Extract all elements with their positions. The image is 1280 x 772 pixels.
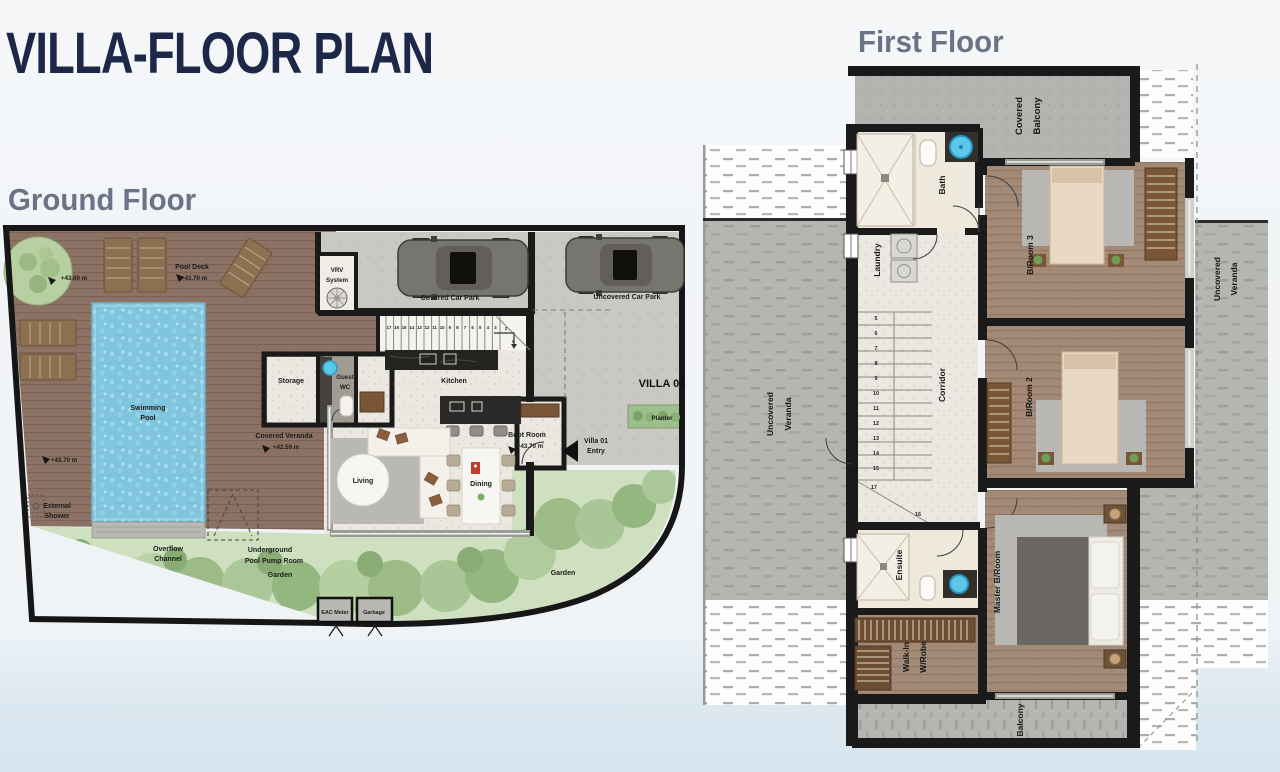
uncovered-car-park-label: Uncovered Car Park	[594, 294, 661, 301]
svg-text:6: 6	[875, 331, 878, 337]
uncovered-veranda-left-label-1: Uncovered	[765, 392, 775, 436]
kitchen-label: Kitchen	[441, 378, 467, 385]
garden-label-right: Garden	[551, 570, 576, 577]
svg-text:11: 11	[873, 406, 879, 412]
bath-toilet-icon	[920, 140, 936, 166]
uncovered-veranda-left-label-2: Veranda	[783, 397, 793, 430]
ensuite-toilet-icon	[920, 576, 935, 600]
master-b-room-furniture	[995, 505, 1126, 668]
pool-deck-label: Pool Deck	[175, 264, 209, 271]
villa-entry-label-1: Villa 01	[584, 438, 608, 445]
svg-text:10: 10	[873, 391, 879, 397]
first-floor-plan: Covered Balcony Bath Laundry Corridor B/…	[695, 58, 1280, 758]
balcony-label: Balcony	[1015, 703, 1025, 736]
pool-deck-level: +43.70 m	[181, 275, 208, 282]
covered-balcony-label-2: Balcony	[1032, 97, 1043, 135]
ensuite-label: Ensuite	[894, 549, 904, 580]
planter-label: Planter	[652, 415, 674, 422]
covered-veranda-label: Covered Veranda	[255, 433, 312, 440]
b-room-3-label: B/Room 3	[1025, 235, 1035, 275]
external-shower-label-1: External	[43, 503, 71, 510]
uncovered-veranda-right-label-1: Uncovered	[1212, 257, 1222, 301]
svg-text:12: 12	[425, 325, 430, 330]
svg-text:13: 13	[873, 436, 879, 442]
boot-room-level: +43.70 m	[517, 443, 544, 450]
guest-wc-label-1: Guest	[336, 374, 354, 381]
storage-label: Storage	[278, 378, 304, 385]
guest-wc-label-2: WC	[340, 384, 351, 391]
svg-text:17: 17	[871, 485, 877, 491]
svg-text:17: 17	[387, 325, 392, 330]
swimming-pool-label-1: Swimming	[130, 405, 165, 412]
villa-01-label: VILLA 01	[639, 378, 686, 390]
ensuite-sink-icon	[950, 575, 968, 593]
master-b-room-label: Master B/Room	[992, 550, 1002, 613]
tree-level: +43.60 m	[61, 275, 88, 282]
page-title: VILLA-FLOOR PLAN	[6, 20, 433, 87]
living-label: Living	[353, 478, 374, 485]
svg-text:16: 16	[394, 325, 399, 330]
garbage-label: Garbage	[363, 610, 385, 616]
svg-text:13: 13	[417, 325, 422, 330]
overflow-label-1: Overflow	[153, 546, 184, 553]
laundry-fixtures	[891, 234, 917, 282]
overflow-label-2: Channel	[154, 556, 182, 563]
covered-balcony-label-1: Covered	[1014, 97, 1025, 135]
svg-text:15: 15	[873, 466, 879, 472]
wc-sink-icon	[323, 361, 337, 375]
deck-tree	[4, 237, 72, 305]
external-shower-label-2: Shower	[44, 513, 70, 520]
svg-text:15: 15	[402, 325, 407, 330]
walk-in-robe-label-2: W/Robe	[918, 641, 928, 673]
svg-text:12: 12	[873, 421, 879, 427]
ground-floor-heading: Ground Floor	[8, 182, 196, 218]
pump-room-label-1: Underground	[248, 547, 292, 554]
vrv-label-2: System	[326, 277, 349, 284]
corridor-label: Corridor	[937, 367, 947, 402]
walk-in-robe-label-1: Walk-In	[901, 642, 911, 672]
car-uncovered-park	[566, 234, 684, 296]
vrv-fan-icon	[327, 288, 347, 308]
svg-text:16: 16	[915, 512, 921, 518]
dining-label: Dining	[470, 481, 492, 488]
dining-decor-icon	[471, 462, 480, 474]
lamp-icon	[1110, 509, 1121, 520]
svg-text:5: 5	[875, 316, 878, 322]
ground-floor-plan: Pool Deck +43.70 m +43.60 m Swimming Poo…	[0, 224, 690, 646]
garden-label-mid: Garden	[268, 572, 293, 579]
villa-floor-plan-page: VILLA-FLOOR PLAN Ground Floor First Floo…	[0, 0, 1280, 772]
boot-room-label: Boot Room	[508, 432, 546, 439]
vrv-label-1: VRV	[331, 267, 344, 274]
first-floor-heading: First Floor	[858, 24, 1004, 60]
svg-text:7: 7	[875, 346, 878, 352]
svg-text:10: 10	[440, 325, 445, 330]
deck-level: +43.70 m	[51, 457, 78, 464]
pump-room-label-2: Pool Pump Room	[245, 558, 303, 565]
svg-text:8: 8	[875, 361, 878, 367]
svg-text:11: 11	[432, 325, 437, 330]
car-covered-park	[398, 236, 528, 300]
svg-text:14: 14	[409, 325, 414, 330]
svg-text:14: 14	[873, 451, 879, 457]
uncovered-veranda-right-label-2: Veranda	[1229, 262, 1239, 295]
wc-toilet-icon	[340, 396, 353, 416]
bath-label: Bath	[937, 176, 947, 195]
b-room-2-label: B/Room 2	[1024, 377, 1034, 417]
covered-car-park-label: Covered Car Park	[421, 295, 480, 302]
svg-text:9: 9	[875, 376, 878, 382]
laundry-label: Laundry	[872, 243, 882, 277]
covered-veranda-level: +42.59 m	[273, 444, 300, 451]
shower-drain-icon	[881, 174, 889, 182]
lamp-icon	[1110, 654, 1121, 665]
villa-entry-label-2: Entry	[587, 448, 605, 455]
swimming-pool-label-2: Pool	[140, 415, 155, 422]
eac-meter-label: EAC Meter	[321, 610, 349, 616]
